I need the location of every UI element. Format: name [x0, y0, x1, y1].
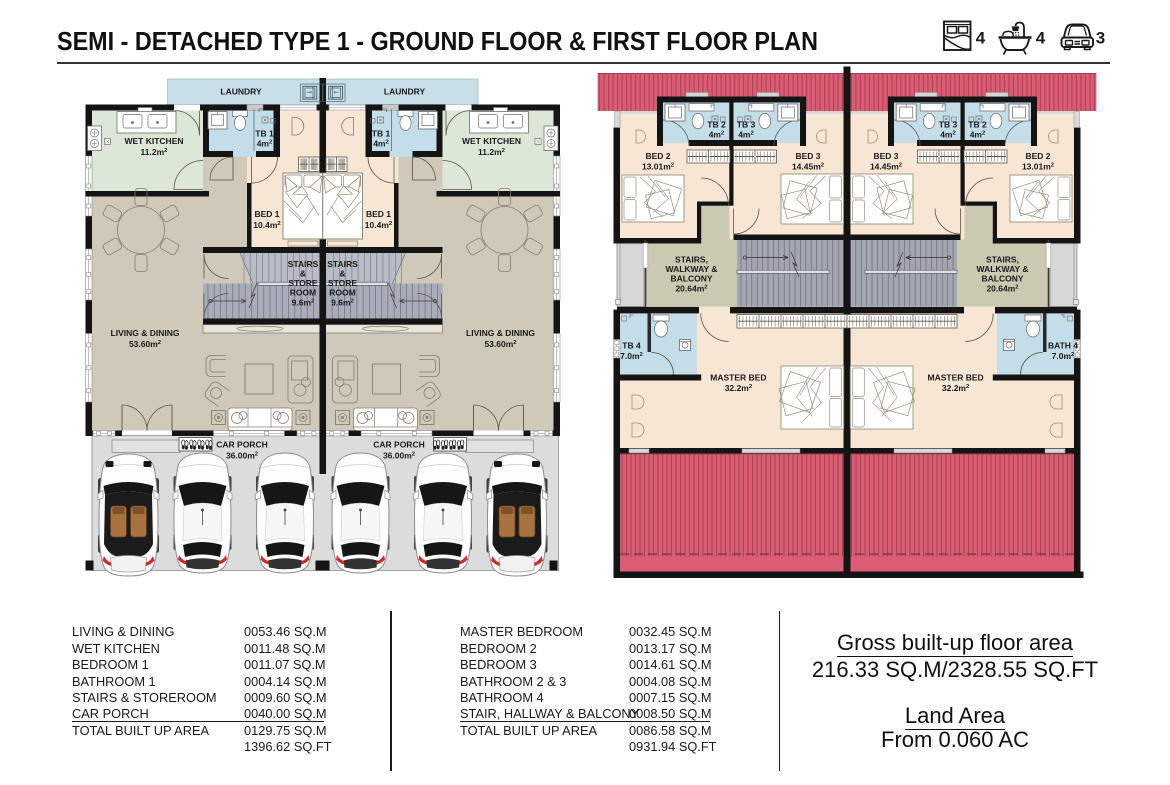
svg-text:11.2m2: 11.2m2: [141, 147, 169, 157]
svg-text:20.64m2: 20.64m2: [675, 284, 708, 294]
svg-text:BED 1: BED 1: [366, 209, 391, 219]
svg-text:MASTER BED: MASTER BED: [710, 373, 766, 383]
svg-text:MASTER BED: MASTER BED: [927, 373, 983, 383]
svg-text:3: 3: [1096, 29, 1105, 48]
svg-text:LAUNDRY: LAUNDRY: [384, 87, 426, 97]
svg-text:STORE: STORE: [328, 278, 357, 288]
svg-text:36.00m2: 36.00m2: [383, 451, 416, 461]
svg-text:WALKWAY &: WALKWAY &: [977, 264, 1029, 274]
svg-text:STORE: STORE: [288, 278, 317, 288]
svg-text:WALKWAY &: WALKWAY &: [666, 264, 718, 274]
svg-text:LIVING & DINING: LIVING & DINING: [111, 328, 180, 338]
svg-text:TB 4: TB 4: [622, 341, 641, 351]
svg-text:BALCONY: BALCONY: [670, 274, 712, 284]
svg-text:TB 1: TB 1: [372, 129, 391, 139]
svg-text:BED 3: BED 3: [795, 151, 820, 161]
svg-text:4: 4: [1036, 29, 1046, 48]
svg-text:STAIRS: STAIRS: [288, 259, 319, 269]
svg-text:10.4m2: 10.4m2: [365, 220, 393, 230]
svg-text:STAIRS,: STAIRS,: [675, 255, 708, 265]
svg-text:11.2m2: 11.2m2: [478, 147, 506, 157]
svg-text:10.4m2: 10.4m2: [253, 220, 281, 230]
svg-text:BED 2: BED 2: [1025, 151, 1050, 161]
svg-text:ROOM: ROOM: [329, 288, 355, 298]
svg-text:53.60m2: 53.60m2: [129, 339, 162, 349]
svg-text:WET KITCHEN: WET KITCHEN: [124, 136, 183, 146]
svg-text:ROOM: ROOM: [290, 288, 316, 298]
svg-text:32.2m2: 32.2m2: [725, 383, 753, 393]
svg-text:14.45m2: 14.45m2: [870, 162, 903, 172]
svg-text:36.00m2: 36.00m2: [226, 451, 259, 461]
svg-text:TB 2: TB 2: [707, 120, 726, 130]
svg-text:STAIRS: STAIRS: [327, 259, 358, 269]
svg-text:14.45m2: 14.45m2: [792, 162, 825, 172]
svg-text:TB 3: TB 3: [939, 120, 958, 130]
svg-text:4: 4: [976, 29, 986, 48]
svg-text:CAR PORCH: CAR PORCH: [373, 440, 424, 450]
svg-text:TB 1: TB 1: [255, 129, 274, 139]
svg-text:BALCONY: BALCONY: [981, 274, 1023, 284]
svg-text:BED 2: BED 2: [645, 151, 670, 161]
svg-text:BED 1: BED 1: [254, 209, 279, 219]
svg-text:STAIRS,: STAIRS,: [986, 255, 1019, 265]
svg-text:CAR PORCH: CAR PORCH: [216, 440, 267, 450]
svg-text:WET KITCHEN: WET KITCHEN: [462, 136, 521, 146]
svg-text:TB 2: TB 2: [968, 120, 987, 130]
svg-text:LAUNDRY: LAUNDRY: [220, 87, 262, 97]
svg-text:&: &: [339, 269, 345, 279]
svg-text:20.64m2: 20.64m2: [986, 284, 1019, 294]
svg-text:13.01m2: 13.01m2: [1022, 162, 1055, 172]
svg-text:53.60m2: 53.60m2: [484, 339, 517, 349]
svg-text:&: &: [300, 269, 306, 279]
svg-text:BED 3: BED 3: [873, 151, 898, 161]
svg-text:BATH 4: BATH 4: [1048, 341, 1078, 351]
svg-text:TB 3: TB 3: [737, 120, 756, 130]
svg-text:LIVING & DINING: LIVING & DINING: [466, 328, 535, 338]
svg-text:13.01m2: 13.01m2: [642, 162, 675, 172]
svg-text:32.2m2: 32.2m2: [942, 383, 970, 393]
